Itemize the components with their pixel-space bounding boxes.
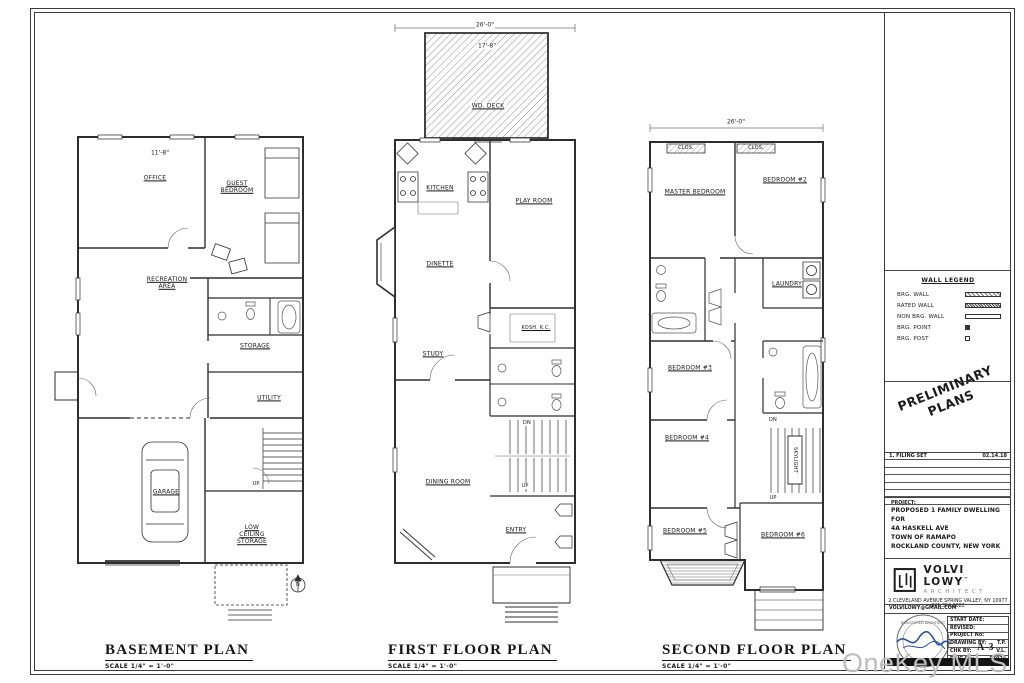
legend-label: BRG. POINT [897,325,931,331]
first-floor-plan: 26'-0" 17'-8" WD. DECK KITCHEN PLAY ROOM… [360,18,600,633]
room-label-bedroom-2: BEDROOM #2 [763,176,807,183]
legend-row-brg-post: BRG. POST [885,333,1011,344]
firm-logo-row: VOLVI LOWY™ ARCHITECT [885,559,1011,595]
room-label-laundry: LAUNDRY [772,280,802,287]
second-floor-title-block: SECOND FLOOR PLAN SCALE 1/4" = 1'-0" [662,639,851,670]
dim-deck-width: 17'-8" [477,43,497,50]
basement-porch [215,565,287,620]
project-line-3: TOWN OF RAMAPO [891,533,1011,542]
room-label-dinette: DINETTE [426,260,453,267]
legend-label: BRG. POST [897,336,929,342]
legend-label: BRG. WALL [897,292,929,298]
legend-label: NON BRG. WALL [897,314,944,320]
project-line-4: ROCKLAND COUNTY, NEW YORK [891,542,1011,551]
bay-window-roof [660,560,745,585]
title-block: WALL LEGEND BRG. WALL RATED WALL NON BRG… [884,12,1011,669]
closet-label-1: CLOS. [678,145,694,151]
stairs-up-label-first: UP [521,483,528,489]
info-row-revised: REVISED: [948,625,1008,633]
dim-overall-width-first: 26'-0" [475,22,495,29]
first-floor-stairs [495,420,570,492]
hall-bath-fixtures [769,346,821,409]
room-label-low-ceiling-storage: LOW CEILING STORAGE [233,524,271,546]
room-label-master-bedroom: MASTER BEDROOM [665,188,726,195]
project-line-2: 4A HASKELL AVE [891,524,1011,533]
room-label-kosher-kitchen: KOSH. K.C. [522,325,551,331]
closet-label-2: CLOS. [748,145,764,151]
revision-row-empty [885,460,1011,467]
basement-plan-scale: SCALE 1/4" = 1'-0" [105,663,253,670]
firm-name-block: VOLVI LOWY™ ARCHITECT [924,564,1007,595]
room-label-utility: UTILITY [257,394,281,401]
legend-row-non-brg-wall: NON BRG. WALL [885,311,1011,322]
brg-post-swatch [965,336,970,341]
firm-logo-block: VOLVI LOWY™ ARCHITECT 2 CLEVELAND AVENUE… [885,558,1011,604]
room-label-bedroom-3: BEDROOM #3 [668,364,712,371]
legend-row-rated-wall: RATED WALL [885,300,1011,311]
stamp-text-top: REGISTERED ARCHITECT [901,621,946,625]
room-label-bedroom-6: BEDROOM #6 [761,531,805,538]
basement-bath-fixtures [218,301,300,333]
revision-row-empty [885,468,1011,475]
room-label-kitchen: KITCHEN [426,184,453,191]
front-porch [493,567,570,622]
legend-row-brg-point: BRG. POINT [885,322,1011,333]
revision-entry: 1. FILING SET [889,453,927,459]
revision-row-empty [885,475,1011,482]
info-label: REVISED: [950,626,975,631]
room-label-bedroom-4: BEDROOM #4 [665,434,709,441]
stairs-up-label-second: UP [769,495,776,501]
bedroom-closets [725,522,737,558]
firm-name: VOLVI LOWY™ [924,564,1007,588]
info-row-start-date: START DATE: [948,617,1008,625]
dim-office-width: 11'-8" [150,150,170,157]
project-info: PROJECT: PROPOSED 1 FAMILY DWELLING FOR … [885,497,1011,558]
legend-label: RATED WALL [897,303,934,309]
room-label-garage: GARAGE [153,488,179,495]
room-label-study: STUDY [423,350,444,357]
stairs-up-label: UP [252,481,259,487]
room-label-guest-bedroom: GUEST BEDROOM [219,180,255,194]
basement-beds [211,148,299,274]
room-label-dining-room: DINING ROOM [426,478,471,485]
entry-closets [555,504,572,548]
info-label: START DATE: [950,618,984,623]
dim-overall-width-second: 26'-0" [726,119,746,126]
volvi-lowy-logo-icon [893,566,917,594]
basement-stairs [253,428,303,489]
stairs-dn-label-second: DN [769,417,777,423]
room-label-recreation-area: RECREATION AREA [145,276,189,290]
first-floor-title-block: FIRST FLOOR PLAN SCALE 1/4" = 1'-0" [388,639,557,670]
brg-wall-swatch [965,292,1001,297]
room-label-entry: ENTRY [506,526,526,533]
room-label-office: OFFICE [144,174,167,181]
north-letter: N [296,582,300,588]
basement-title-block: BASEMENT PLAN SCALE 1/4" = 1'-0" [105,639,253,670]
project-line-1: PROPOSED 1 FAMILY DWELLING FOR [891,506,1011,524]
basement-plan-drawing [50,128,310,628]
revision-label: FILING SET [896,453,927,459]
powder-room-fixtures [498,360,561,411]
deck [395,24,575,138]
porch-roof [755,590,823,630]
revision-date: 02.14.18 [982,453,1007,459]
revision-row-empty [885,483,1011,490]
firm-name-text: VOLVI LOWY [924,564,965,588]
rated-wall-swatch [965,303,1001,308]
wall-legend-title: WALL LEGEND [885,277,1011,284]
kitchen-fixtures [397,143,488,214]
first-floor-plan-title: FIRST FLOOR PLAN [388,642,557,661]
room-label-storage: STORAGE [240,342,270,349]
first-floor-plan-scale: SCALE 1/4" = 1'-0" [388,663,557,670]
second-floor-plan: 26'-0" CLOS. CLOS. MASTER BEDROOM BEDROO… [645,108,880,638]
non-brg-wall-swatch [965,314,1001,319]
first-floor-plan-drawing [360,18,600,633]
second-floor-plan-title: SECOND FLOOR PLAN [662,642,851,661]
room-label-play-room: PLAY ROOM [516,197,553,204]
room-label-bedroom-5: BEDROOM #5 [663,527,707,534]
firm-tm: ™ [964,578,970,583]
second-floor-plan-scale: SCALE 1/4" = 1'-0" [662,663,851,670]
revision-row-1: 1. FILING SET 02.14.18 [885,453,1011,460]
basement-plan: OFFICE GUEST BEDROOM RECREATION AREA STO… [50,128,310,628]
room-label-deck: WD. DECK [470,102,507,109]
basement-plan-title: BASEMENT PLAN [105,642,253,661]
laundry-fixtures [803,262,820,298]
info-label: PROJECT No: [950,633,984,638]
brg-point-swatch [965,325,970,330]
revision-no: 1. [889,453,894,459]
onekey-mls-watermark: OneKey MLS [842,648,1008,679]
info-value: T.P. [997,641,1006,646]
legend-row-brg-wall: BRG. WALL [885,289,1011,300]
skylight-label: SKYLIGHT [792,447,798,473]
firm-subtitle: ARCHITECT [924,589,1007,595]
master-bath-fixtures [652,266,721,334]
stairs-dn-label-first: DN [523,420,531,426]
info-row-project-no: PROJECT No: [948,633,1008,641]
revision-table: 1. FILING SET 02.14.18 [885,452,1011,497]
